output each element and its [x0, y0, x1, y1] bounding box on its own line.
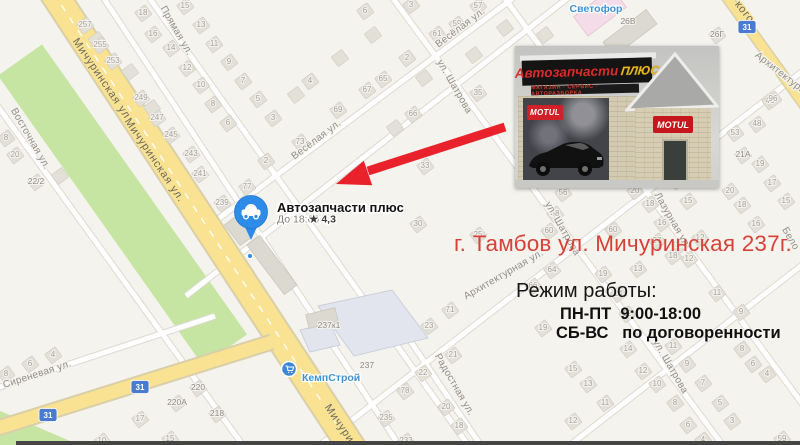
building-label: 245 — [164, 130, 178, 139]
building-label: 12 — [569, 416, 578, 425]
schedule-title: Режим работы: — [516, 280, 657, 303]
building-label: 18 — [139, 8, 148, 17]
building-label: 8 — [740, 344, 745, 353]
building-label: 67 — [363, 85, 372, 94]
building-label: 14 — [167, 43, 176, 52]
building-label: 19 — [756, 159, 765, 168]
building-label: 8 — [673, 398, 678, 407]
building-label: 7 — [701, 378, 706, 387]
building-label: 71 — [446, 305, 455, 314]
building-label: 33 — [421, 161, 430, 170]
motul-logo-banner: MOTUL — [527, 105, 563, 120]
building-label: 6 — [751, 359, 756, 368]
building-label: 18 — [646, 199, 655, 208]
building-label: 11 — [210, 39, 219, 48]
building-label: 257 — [78, 20, 92, 29]
building-label: 11 — [601, 398, 610, 407]
building-label: 4 — [308, 76, 313, 85]
building-label: 20 — [442, 402, 451, 411]
building-label: 241 — [193, 169, 207, 178]
building-label: 9 — [739, 307, 744, 316]
building-label: 64 — [548, 265, 557, 274]
poi-label-svetofor[interactable]: Светофор — [570, 3, 623, 15]
building-label: 3 — [730, 416, 735, 425]
building-label: 15 — [782, 196, 791, 205]
building-label: 13 — [634, 264, 643, 273]
building-label: 22 — [419, 368, 428, 377]
building-label: 56 — [559, 188, 568, 197]
building-label: 26В — [620, 16, 635, 26]
building-label: 237 — [360, 360, 374, 370]
building-label: 220А — [167, 397, 187, 407]
building-label: 9 — [685, 359, 690, 368]
building-label: 6 — [28, 359, 33, 368]
building-label: 220 — [191, 382, 205, 392]
building-label: 13 — [197, 20, 206, 29]
building-label: 2 — [405, 53, 410, 62]
building-label: 20 — [726, 186, 735, 195]
building-label: 19 — [539, 323, 548, 332]
building-label: 69 — [334, 105, 343, 114]
schedule-weekdays: ПН-ПТ 9:00-18:00 — [560, 305, 701, 324]
svg-text:31: 31 — [136, 383, 145, 392]
svg-text:31: 31 — [743, 23, 752, 32]
building-label: 218 — [210, 408, 224, 418]
motul-sign-building: MOTUL — [653, 116, 693, 133]
building-label: 5 — [256, 94, 261, 103]
building-label: 4 — [765, 369, 770, 378]
building-label: 12 — [639, 366, 648, 375]
building-label: 3 — [409, 0, 414, 9]
route-shield: 31 — [738, 21, 756, 34]
building-label: 30 — [414, 219, 423, 228]
store-sign-text: Автозапчасти — [515, 63, 618, 81]
building-label: 235 — [379, 413, 393, 422]
building-label: 21 — [449, 350, 458, 359]
building-label: 249 — [134, 93, 148, 102]
schedule-weekend: СБ-ВС по договоренности — [556, 324, 781, 343]
building-label: 12 — [183, 63, 192, 72]
building-label: 6 — [363, 6, 368, 15]
building-label: 9 — [227, 57, 232, 66]
building-label: 35 — [474, 88, 483, 97]
map-screenshot: 1816141210861513119753257255253249247245… — [0, 0, 800, 445]
kempstroy-poi-icon[interactable] — [282, 362, 297, 377]
building-label: 247 — [150, 113, 164, 122]
route-shield: 31 — [39, 409, 57, 422]
poi-label-kempstroy[interactable]: КемпСтрой — [302, 372, 360, 384]
pin-anchor-dot — [248, 254, 253, 259]
building-label: 22/2 — [28, 176, 45, 186]
address-annotation: г. Тамбов ул. Мичуринская 237г. — [454, 231, 792, 257]
building-label: 15 — [684, 196, 693, 205]
building-label: 17 — [136, 414, 145, 423]
photo-banner: MOTUL — [523, 98, 609, 180]
building-label: 10 — [197, 80, 206, 89]
building-label: 243 — [184, 149, 198, 158]
store-subsign: МАГАЗИН · СЕРВИС · АВТОРАЗБОРКА — [531, 84, 639, 96]
car-photo-silhouette — [523, 132, 609, 180]
building-label: 13 — [584, 379, 593, 388]
building-label: 77 — [243, 182, 252, 191]
building-label: 237к1 — [318, 320, 341, 330]
building-label: 11 — [713, 288, 722, 297]
building-label: 96 — [769, 94, 778, 103]
building-label: 15 — [569, 364, 578, 373]
building-label: 3 — [271, 113, 276, 122]
photo-curb — [515, 180, 719, 188]
building-label: 5 — [718, 398, 723, 407]
building-label: 8 — [4, 369, 9, 378]
building-label: 8 — [4, 133, 9, 142]
building-label: 15 — [181, 1, 190, 10]
building-label: 48 — [753, 119, 762, 128]
building-label: 66 — [409, 109, 418, 118]
building-label: 4 — [51, 350, 56, 359]
svg-text:31: 31 — [44, 411, 53, 420]
building-label: 7 — [241, 76, 246, 85]
building-label: 19 — [599, 269, 608, 278]
building-label: 65 — [379, 74, 388, 83]
building-label: 255 — [93, 40, 107, 49]
building-label: 78 — [401, 386, 410, 395]
building-label: 239 — [215, 198, 229, 207]
building-label: 53 — [731, 128, 740, 137]
building-label: 23 — [425, 321, 434, 330]
building-label: 18 — [738, 200, 747, 209]
bottom-edge-bar — [16, 441, 800, 445]
building-label: 6 — [226, 118, 231, 127]
building-label: 253 — [106, 56, 120, 65]
marker-rating: ★ 4,3 — [309, 214, 336, 226]
building-label: 21А — [735, 149, 750, 159]
storefront-photo: Автозапчасти ПЛЮС МАГАЗИН · СЕРВИС · АВТ… — [515, 46, 719, 188]
building-label: 16 — [149, 29, 158, 38]
building-label: 6 — [686, 420, 691, 429]
building-label: 10 — [653, 379, 662, 388]
building-label: 17 — [768, 178, 777, 187]
route-shield: 31 — [131, 381, 149, 394]
building-label: 20 — [11, 150, 20, 159]
building-label: 2 — [264, 156, 269, 165]
building-label: 18 — [455, 421, 464, 430]
building-label: 8 — [211, 99, 216, 108]
building-label: 16 — [752, 219, 761, 228]
building-label: 14 — [624, 344, 633, 353]
building-label: 26Г — [710, 29, 724, 39]
